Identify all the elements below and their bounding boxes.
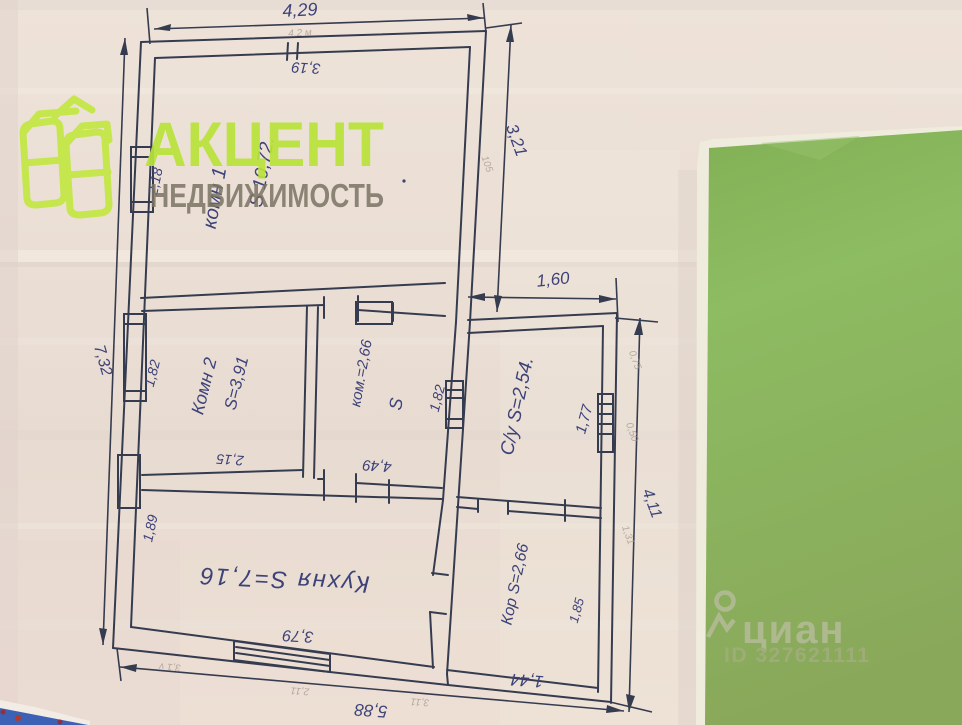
svg-text:4.2 м: 4.2 м bbox=[288, 27, 312, 39]
svg-text:2,11: 2,11 bbox=[290, 684, 310, 696]
svg-text:ID 327621111: ID 327621111 bbox=[724, 644, 870, 667]
svg-text:1,44: 1,44 bbox=[510, 670, 544, 691]
svg-text:3,19: 3,19 bbox=[290, 58, 321, 77]
svg-text:3,79: 3,79 bbox=[282, 626, 314, 645]
svg-text:4,49: 4,49 bbox=[361, 456, 392, 475]
svg-text:1,60: 1,60 bbox=[536, 268, 571, 290]
svg-text:5,88: 5,88 bbox=[353, 700, 388, 721]
svg-text:3,1 v: 3,1 v bbox=[158, 660, 181, 673]
svg-text:2,15: 2,15 bbox=[216, 451, 246, 469]
svg-text:3,11: 3,11 bbox=[410, 695, 429, 707]
svg-text:НЕДВИЖИМОСТЬ: НЕДВИЖИМОСТЬ bbox=[150, 177, 384, 214]
svg-text:4,29: 4,29 bbox=[282, 0, 318, 21]
svg-text:АКЦЕНТ: АКЦЕНТ bbox=[144, 110, 384, 180]
